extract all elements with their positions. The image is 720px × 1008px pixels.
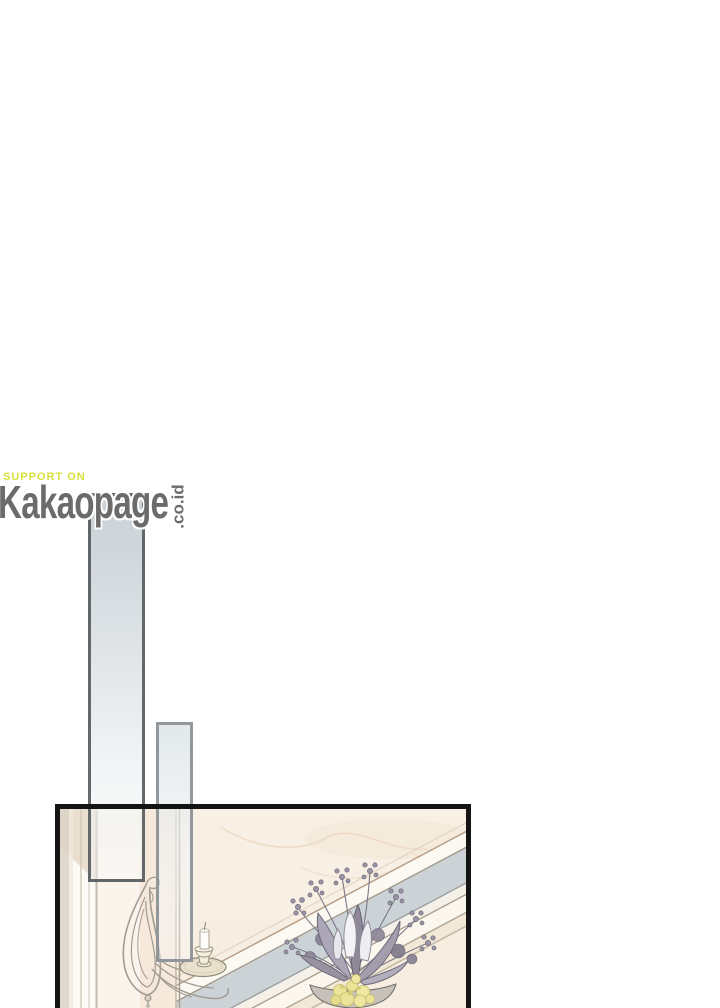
transition-bar-large bbox=[88, 493, 145, 882]
sconce-finial bbox=[145, 995, 151, 1001]
candle bbox=[200, 930, 209, 949]
watermark-brand-text: Kakaopage bbox=[0, 479, 168, 525]
transition-bar-small bbox=[156, 722, 193, 962]
watermark-domain-text: .co.id bbox=[170, 474, 187, 540]
webtoon-page: SUPPORT ON Kakaopage .co.id bbox=[0, 0, 720, 1008]
